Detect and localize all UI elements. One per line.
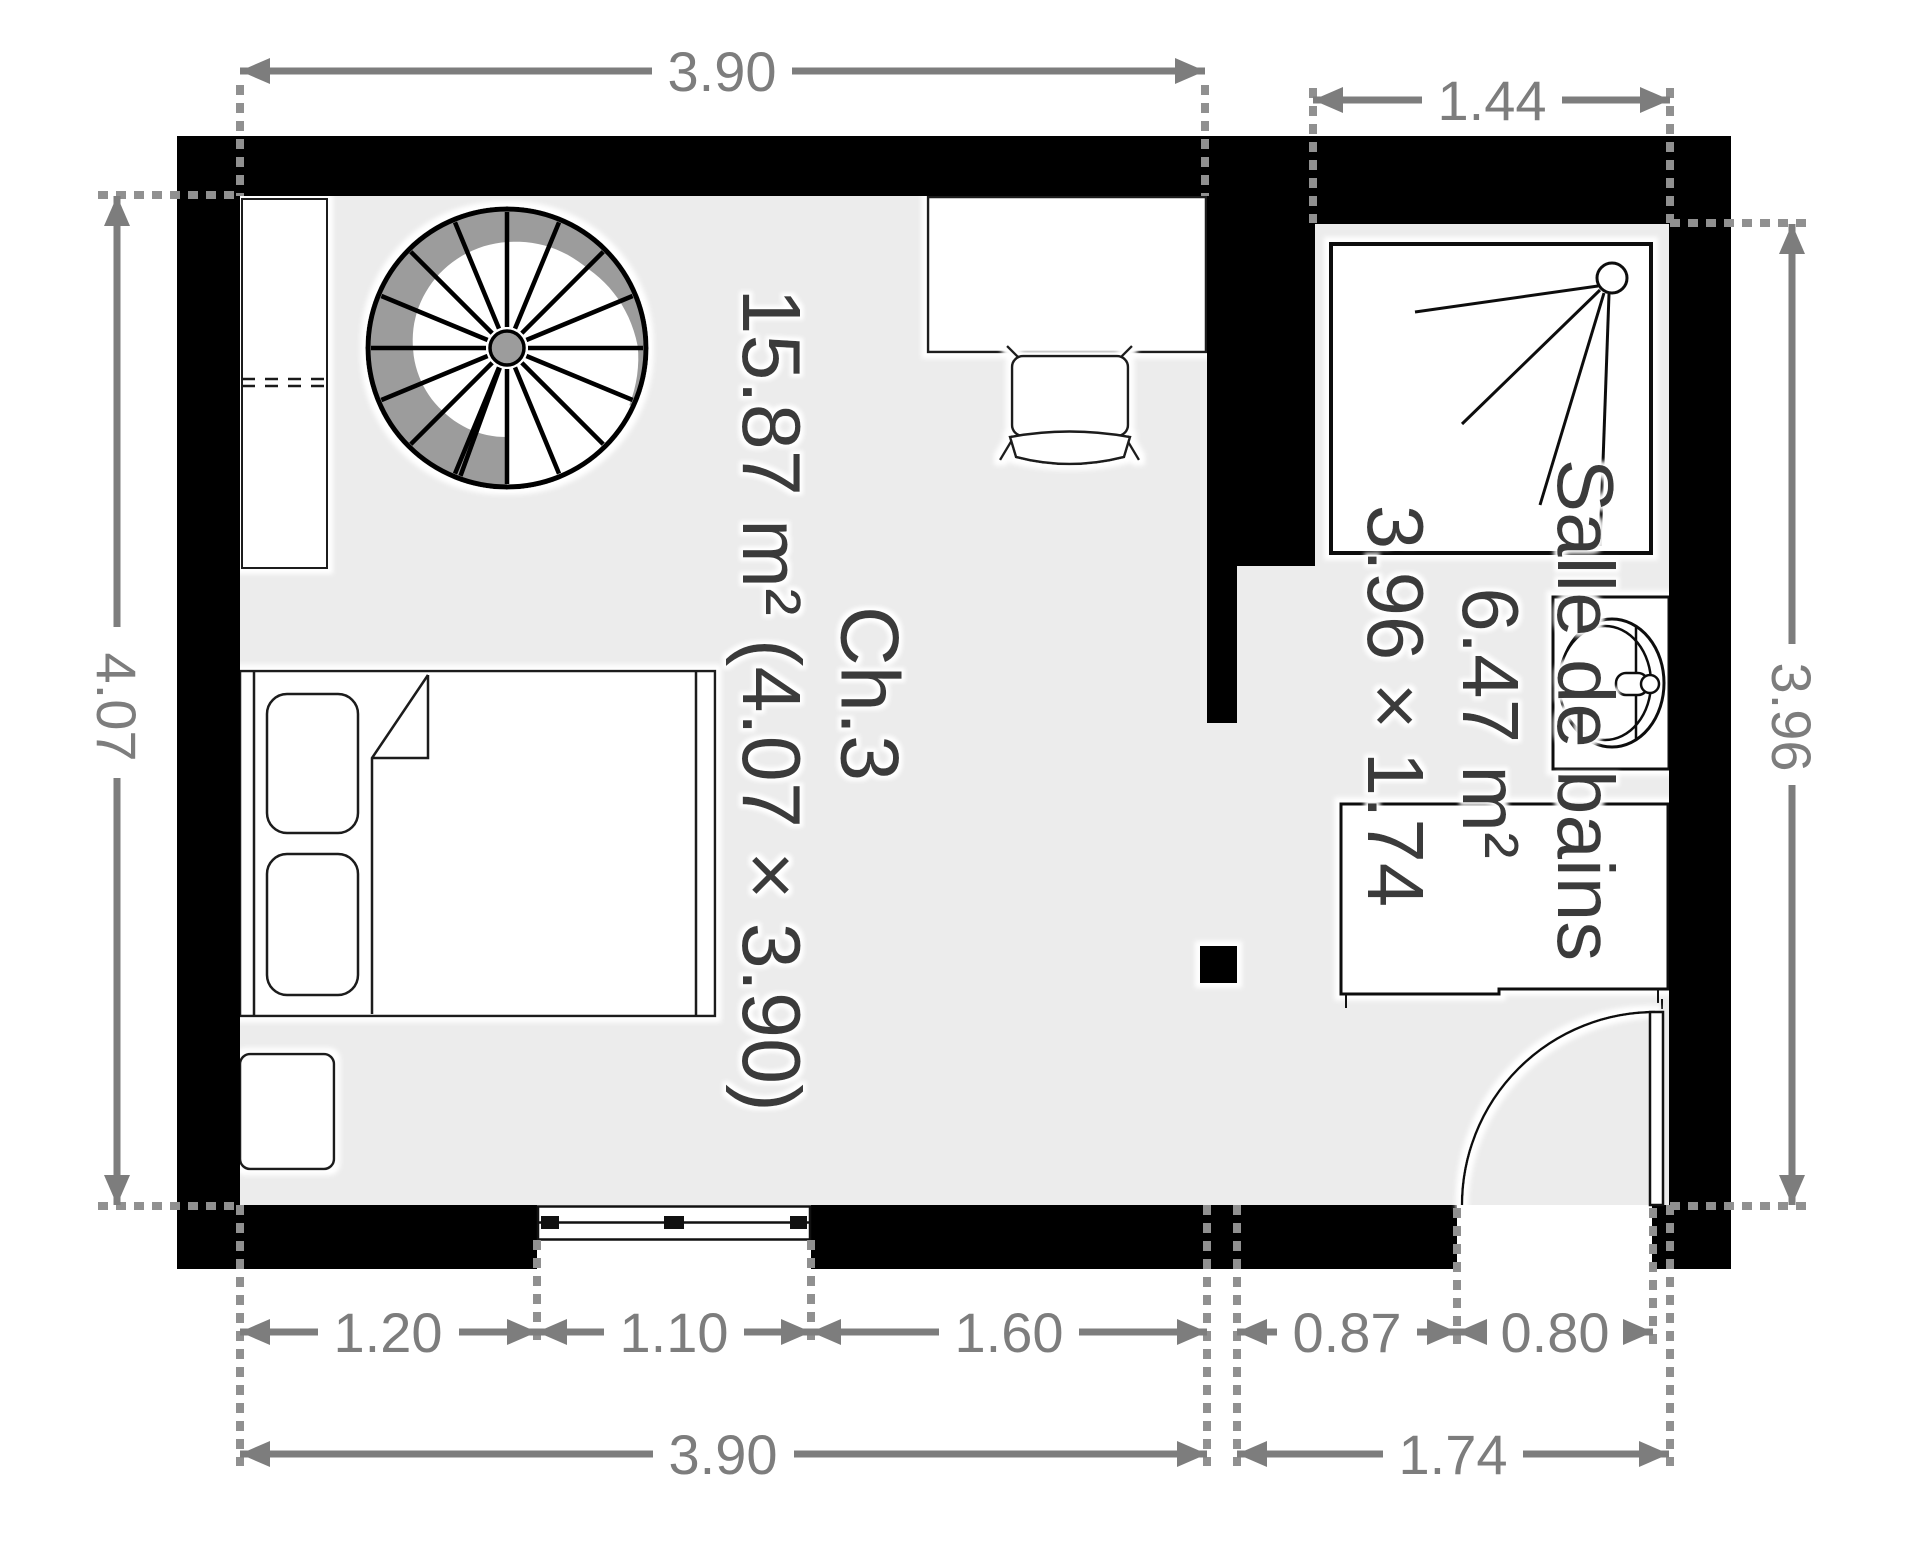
svg-text:4.07: 4.07	[85, 653, 148, 762]
svg-text:0.80: 0.80	[1501, 1301, 1610, 1364]
svg-text:3.90: 3.90	[669, 1423, 778, 1486]
svg-text:15.87 m² (4.07 × 3.90): 15.87 m² (4.07 × 3.90)	[725, 288, 818, 1112]
svg-text:3.90: 3.90	[668, 40, 777, 103]
svg-text:1.20: 1.20	[334, 1301, 443, 1364]
svg-text:3.96: 3.96	[1760, 663, 1823, 772]
svg-text:1.10: 1.10	[620, 1301, 729, 1364]
svg-text:1.60: 1.60	[955, 1301, 1064, 1364]
svg-text:1.74: 1.74	[1399, 1423, 1508, 1486]
svg-text:0.87: 0.87	[1293, 1301, 1402, 1364]
svg-text:Ch.3: Ch.3	[824, 606, 917, 781]
svg-text:3.96 × 1.74: 3.96 × 1.74	[1351, 505, 1440, 908]
svg-text:Salle de bains: Salle de bains	[1541, 459, 1630, 962]
svg-text:1.44: 1.44	[1438, 69, 1547, 132]
svg-text:6.47 m²: 6.47 m²	[1446, 587, 1535, 858]
